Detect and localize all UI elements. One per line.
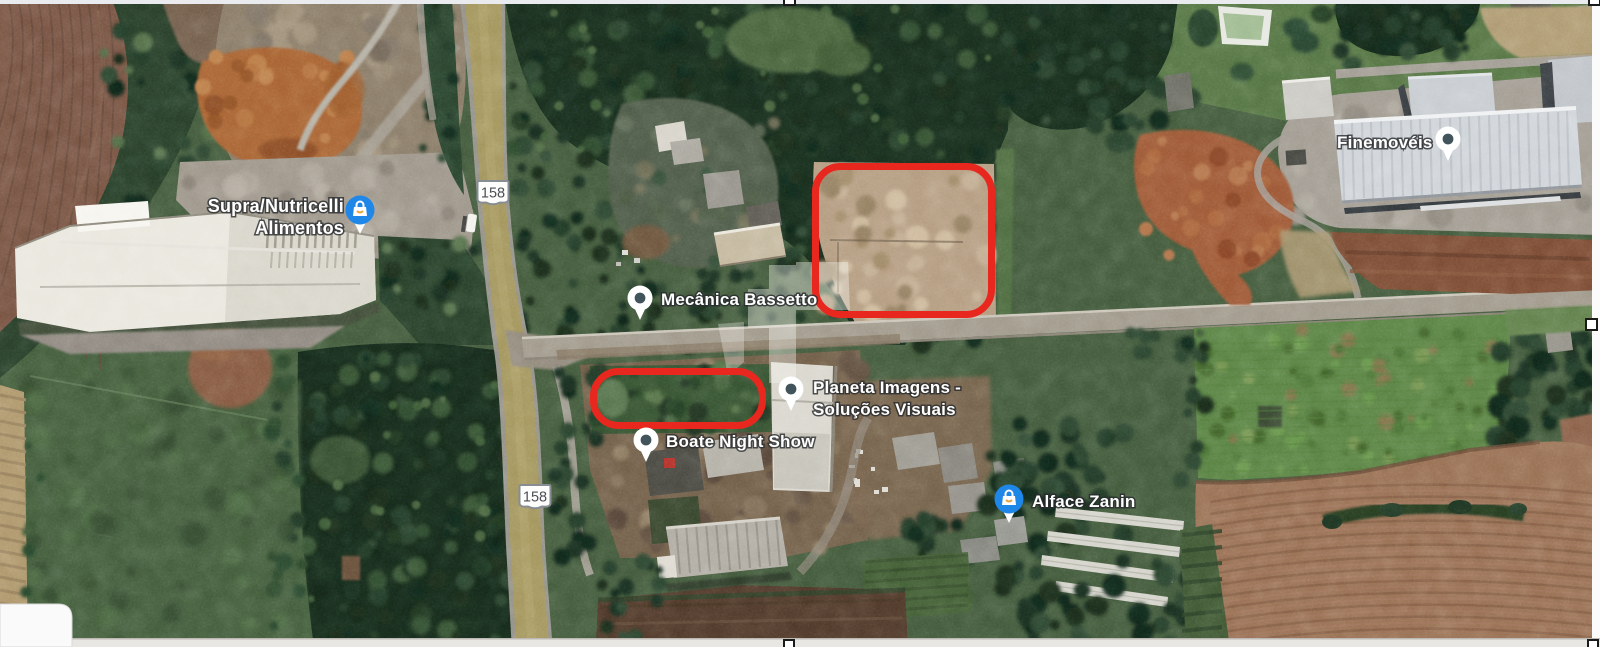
svg-text:Planeta Imagens -: Planeta Imagens - (813, 378, 961, 397)
svg-text:Alimentos: Alimentos (255, 218, 344, 238)
svg-text:158: 158 (481, 186, 505, 202)
svg-text:Soluções Visuais: Soluções Visuais (813, 400, 956, 419)
svg-text:Supra/Nutricelli: Supra/Nutricelli (208, 196, 344, 216)
svg-text:Mecânica Bassetto: Mecânica Bassetto (661, 290, 817, 309)
svg-text:Alface Zanin: Alface Zanin (1032, 492, 1135, 511)
svg-text:158: 158 (523, 490, 547, 506)
svg-text:Finemovéis: Finemovéis (1337, 133, 1433, 152)
svg-text:Boate Night Show: Boate Night Show (666, 432, 815, 451)
